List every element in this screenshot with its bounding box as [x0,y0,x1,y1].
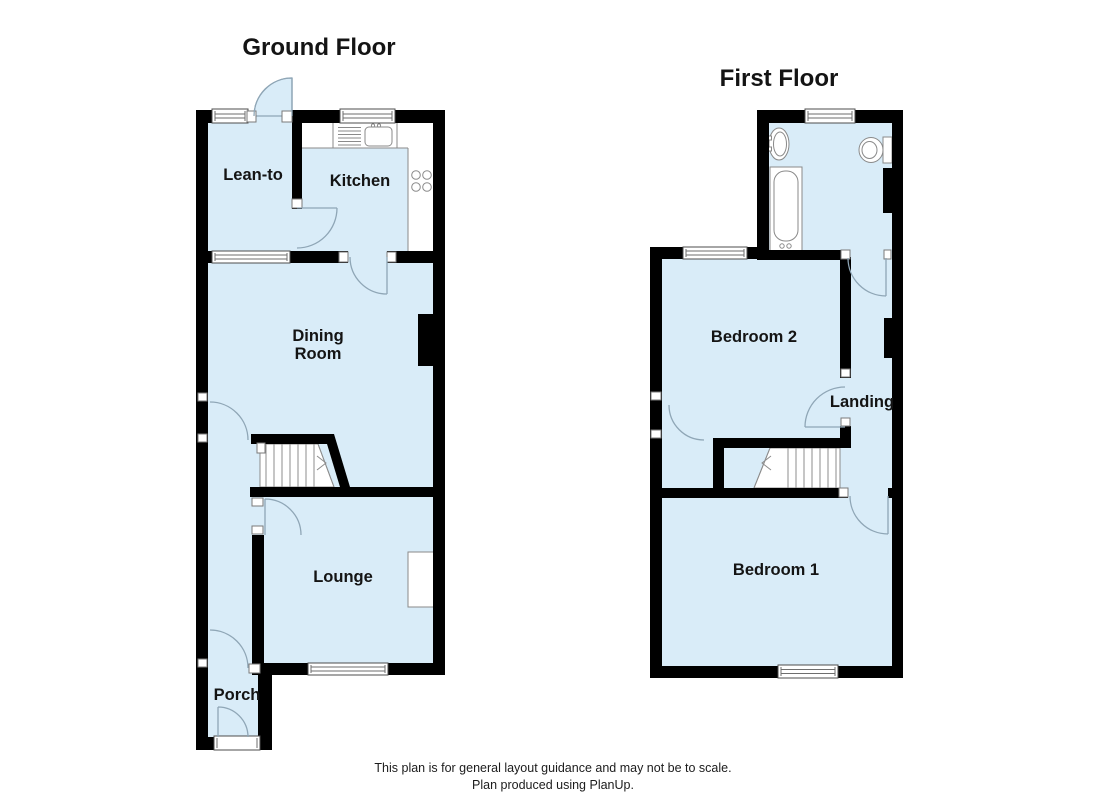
lounge-label: Lounge [313,568,373,586]
chimney-breast-landing [884,318,903,358]
porch-label: Porch [214,686,261,704]
toilet-icon [859,137,892,163]
bedroom1-window [778,665,838,678]
bedroom1-label: Bedroom 1 [733,561,819,579]
front-door-frame [214,736,260,750]
ground-floor-plan: Ground Floor Lean-to Kitchen Dining Room… [196,34,445,750]
dining-room-label-line2: Room [295,345,342,363]
floorplan-drawing: Ground Floor Lean-to Kitchen Dining Room… [0,0,1100,800]
dining-room-label-line1: Dining [292,327,343,345]
leanto-internal-window [212,251,290,263]
chimney-breast-bathroom [883,168,903,213]
bedroom2-label: Bedroom 2 [711,328,797,346]
sink-icon [333,122,397,148]
bath-icon [770,167,802,252]
first-floor-plan: First Floor Bedroom 2 Landing Bedroom 1 [650,65,903,678]
landing-label: Landing [830,393,894,411]
kitchen-window [340,109,395,123]
disclaimer-line1: This plan is for general layout guidance… [374,761,731,775]
first-floor-title: First Floor [720,65,839,92]
lounge-window [308,663,388,675]
leanto-label: Lean-to [223,166,283,184]
kitchen-label: Kitchen [330,172,391,190]
disclaimer-line2: Plan produced using PlanUp. [472,778,634,792]
bathroom-window [805,109,855,123]
bedroom2-window [683,247,747,259]
disclaimer: This plan is for general layout guidance… [374,761,731,792]
fireplace [408,552,434,607]
ground-floor-title: Ground Floor [242,34,395,61]
chimney-breast-dining [418,314,445,366]
floorplan-page: Ground Floor Lean-to Kitchen Dining Room… [0,0,1100,800]
leanto-window [212,109,248,123]
ground-floor-area [202,114,440,672]
